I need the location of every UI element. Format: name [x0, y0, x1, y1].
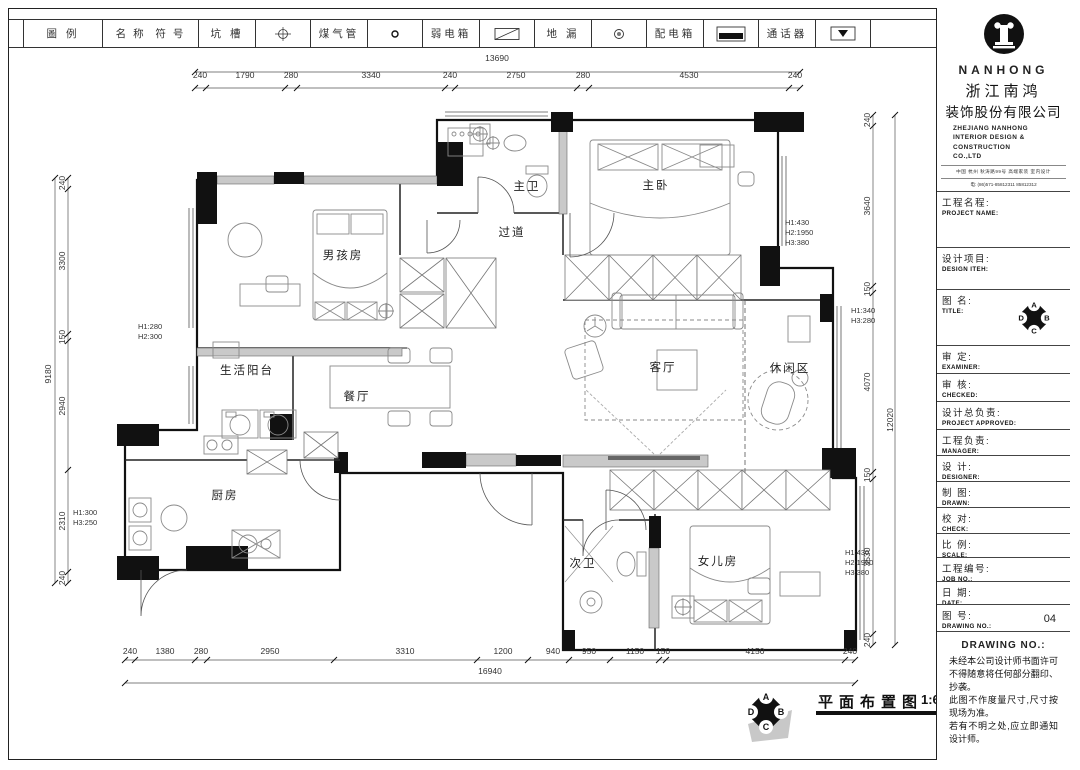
- field-label-cn: 审 核:: [942, 377, 1065, 391]
- floor-plan-drawing: [8, 48, 938, 762]
- dim: 240: [57, 571, 67, 585]
- room-label-master-bath: 主卫: [514, 178, 541, 194]
- field-label-en: EXAMINER:: [942, 364, 1065, 371]
- company-name-cn2: 装饰股份有限公司: [941, 101, 1066, 121]
- compass-icon: A B C D: [738, 684, 796, 746]
- legend-name-header: 名 称: [116, 26, 146, 41]
- field-label-en: DESIGN ITEH:: [942, 266, 1065, 273]
- title-diamond-icon: A B C D: [1010, 294, 1058, 342]
- note-line: 此图不作度量尺寸,尺寸按现场为准。: [949, 694, 1058, 720]
- dim: 1150: [626, 646, 644, 656]
- subtitle-line: CO.,LTD: [953, 152, 1056, 161]
- subtitle-line: ZHEJIANG NANHONG: [953, 124, 1056, 133]
- compass-letter: D: [748, 707, 755, 717]
- field-label-cn: 工程编号:: [942, 561, 1065, 575]
- field-label-cn: 制 图:: [942, 485, 1065, 499]
- dim: 150: [862, 282, 872, 296]
- field-checked: 审 核: CHECKED:: [937, 373, 1070, 401]
- dim: 280: [284, 70, 298, 80]
- legend-gas-symbol: [368, 20, 423, 47]
- dim: 240: [788, 70, 802, 80]
- field-label-en: DESIGNER:: [942, 474, 1065, 481]
- field-label-cn: 设 计:: [942, 459, 1065, 473]
- diamond-letter: B: [1044, 314, 1050, 323]
- diamond-letter: D: [1018, 314, 1024, 323]
- drawing-number-value: 04: [1044, 613, 1056, 625]
- field-project-approved: 设计总负责: PROJECT APPROVED:: [937, 401, 1070, 429]
- notes-title: DRAWING NO.:: [942, 635, 1065, 651]
- field-label-cn: 审 定:: [942, 349, 1065, 363]
- dim: 2750: [507, 70, 526, 80]
- compass-letter: C: [763, 722, 770, 732]
- room-label-boys-room: 男孩房: [323, 247, 364, 263]
- title-block-notes: DRAWING NO.: 未经本公司设计师书面许可不得随意将任何部分翻印、抄袭。…: [937, 631, 1070, 735]
- field-title: 图 名: TITLE: A B C D: [937, 289, 1070, 345]
- room-label-balcony: 生活阳台: [220, 362, 274, 378]
- legend-weak-box-label: 弱电箱: [423, 20, 480, 47]
- dim: 150: [862, 468, 872, 482]
- field-scale: 比 例: SCALE:: [937, 533, 1070, 557]
- field-design-item: 设计项目: DESIGN ITEH:: [937, 247, 1070, 289]
- dim-left-total: 9180: [43, 365, 53, 384]
- dim: 240: [123, 646, 137, 656]
- subtitle-line: INTERIOR DESIGN &: [953, 133, 1056, 142]
- drawing-title: 平面布置图: [818, 691, 923, 712]
- title-underline: [816, 711, 952, 715]
- dim: 1790: [236, 70, 255, 80]
- exterior-walls: [125, 120, 856, 650]
- field-drawing-no: 图 号: DRAWING NO.: 04: [937, 604, 1070, 631]
- company-logo-icon: [982, 12, 1026, 56]
- room-label-corridor: 过道: [499, 224, 526, 240]
- company-name-cn1: 浙江南鸿: [941, 80, 1066, 101]
- company-subtitle: ZHEJIANG NANHONG INTERIOR DESIGN & CONST…: [941, 121, 1066, 161]
- dim: 240: [843, 646, 857, 656]
- field-label-en: DRAWN:: [942, 500, 1065, 507]
- room-label-second-bath: 次卫: [570, 555, 597, 571]
- legend-bar: 圖 例 名 称 符 号 坑 槽 煤气管 弱电箱 地 漏 配电箱: [9, 19, 937, 48]
- field-label-cn: 工程名程:: [942, 195, 1065, 209]
- field-label-cn: 设计项目:: [942, 251, 1065, 265]
- legend-power-box-label: 配电箱: [647, 20, 704, 47]
- small-circle-icon: [389, 28, 401, 40]
- legend-drain-symbol: [592, 20, 647, 47]
- dim: 240: [862, 113, 872, 127]
- dim: 2310: [57, 512, 67, 531]
- room-label-living: 客厅: [650, 359, 677, 375]
- height-note: H1:430 H2:1950 H3:380: [785, 218, 813, 247]
- dim: 240: [443, 70, 457, 80]
- diamond-letter: A: [1031, 301, 1037, 310]
- dim: 4530: [680, 70, 699, 80]
- height-note: H1:340 H3:280: [851, 306, 875, 326]
- dim: 4070: [862, 373, 872, 392]
- field-date: 日 期: DATE:: [937, 581, 1070, 604]
- legend-weak-box-symbol: [480, 20, 535, 47]
- company-name-en: NANHONG: [941, 63, 1066, 77]
- note-line: 若有不明之处,应立即通知设计师。: [949, 720, 1058, 746]
- legend-symbol-header: 符 号: [155, 26, 185, 41]
- field-label-en: CHECK:: [942, 526, 1065, 533]
- dim: 3300: [57, 252, 67, 271]
- dim: 240: [193, 70, 207, 80]
- compass-letter: B: [778, 707, 785, 717]
- field-label-cn: 日 期:: [942, 585, 1065, 599]
- title-block: NANHONG 浙江南鸿 装饰股份有限公司 ZHEJIANG NANHONG I…: [936, 8, 1070, 760]
- dim-bottom-total: 16940: [478, 666, 502, 676]
- legend-gas-label: 煤气管: [311, 20, 368, 47]
- dim: 3640: [862, 197, 872, 216]
- legend-header: 名 称 符 号: [103, 20, 199, 47]
- dim: 3310: [396, 646, 415, 656]
- diagonal-rect-icon: [494, 27, 520, 41]
- field-label-cn: 比 例:: [942, 537, 1065, 551]
- dim-right-total: 12020: [885, 408, 895, 432]
- dim: 2950: [261, 646, 280, 656]
- dim: 150: [57, 330, 67, 344]
- room-label-daughter-room: 女儿房: [698, 553, 739, 569]
- double-circle-icon: [612, 27, 626, 41]
- legend-intercom-symbol: [816, 20, 871, 47]
- room-label-dining: 餐厅: [344, 388, 371, 404]
- field-manager: 工程负责: MANAGER:: [937, 429, 1070, 455]
- field-label-en: MANAGER:: [942, 448, 1065, 455]
- note-line: 未经本公司设计师书面许可不得随意将任何部分翻印、抄袭。: [949, 655, 1058, 694]
- legend-drain-label: 地 漏: [535, 20, 592, 47]
- field-label-cn: 工程负责:: [942, 433, 1065, 447]
- dim: 240: [57, 176, 67, 190]
- field-label-cn: 设计总负责:: [942, 405, 1065, 419]
- field-examiner: 审 定: EXAMINER:: [937, 345, 1070, 373]
- field-job-no: 工程编号: JOB NO.:: [937, 557, 1070, 581]
- field-project-name: 工程名程: PROJECT NAME:: [937, 191, 1070, 247]
- field-check: 校 对: CHECK:: [937, 507, 1070, 533]
- dim: 280: [194, 646, 208, 656]
- field-drawn: 制 图: DRAWN:: [937, 481, 1070, 507]
- legend-title: 圖 例: [23, 20, 103, 47]
- diamond-letter: C: [1031, 327, 1037, 336]
- height-note: H1:300 H3:250: [73, 508, 97, 528]
- dim: 2940: [57, 397, 67, 416]
- dim: 240: [862, 633, 872, 647]
- dim: 940: [546, 646, 560, 656]
- dim: 280: [576, 70, 590, 80]
- triangle-box-icon: [830, 26, 856, 41]
- height-note: H1:280 H2:300: [138, 322, 162, 342]
- filled-rect-icon: [716, 26, 746, 42]
- dimension-lines: [55, 72, 895, 683]
- room-label-kitchen: 厨房: [212, 487, 239, 503]
- company-brand: NANHONG 浙江南鸿 装饰股份有限公司 ZHEJIANG NANHONG I…: [937, 8, 1070, 191]
- height-note: H1:430 H2:1950 H3:380: [845, 548, 873, 577]
- field-label-en: PROJECT APPROVED:: [942, 420, 1065, 427]
- dim-top-total: 13690: [485, 53, 509, 63]
- dim: 950: [582, 646, 596, 656]
- dim: 4150: [746, 646, 765, 656]
- field-designer: 设 计: DESIGNER:: [937, 455, 1070, 481]
- legend-intercom-label: 通话器: [759, 20, 816, 47]
- room-label-leisure: 休闲区: [770, 360, 811, 376]
- subtitle-line: CONSTRUCTION: [953, 143, 1056, 152]
- room-label-master-bedroom: 主卧: [643, 177, 670, 193]
- field-label-en: CHECKED:: [942, 392, 1065, 399]
- legend-pit-label: 坑 槽: [199, 20, 256, 47]
- compass-letter: A: [763, 692, 770, 702]
- company-tagline: 中国 杭州 秋涛路99号 高端家装 室内设计: [941, 165, 1066, 178]
- dim: 1200: [494, 646, 513, 656]
- dim: 3340: [362, 70, 381, 80]
- dim: 150: [656, 646, 670, 656]
- crosshair-icon: [273, 26, 293, 42]
- company-phone: 电: (86)571-85812311 85812312: [941, 178, 1066, 191]
- dimension-ticks: [52, 69, 898, 686]
- dim: 1380: [156, 646, 175, 656]
- legend-pit-symbol: [256, 20, 311, 47]
- legend-power-box-symbol: [704, 20, 759, 47]
- field-label-en: PROJECT NAME:: [942, 210, 1065, 217]
- field-label-cn: 校 对:: [942, 511, 1065, 525]
